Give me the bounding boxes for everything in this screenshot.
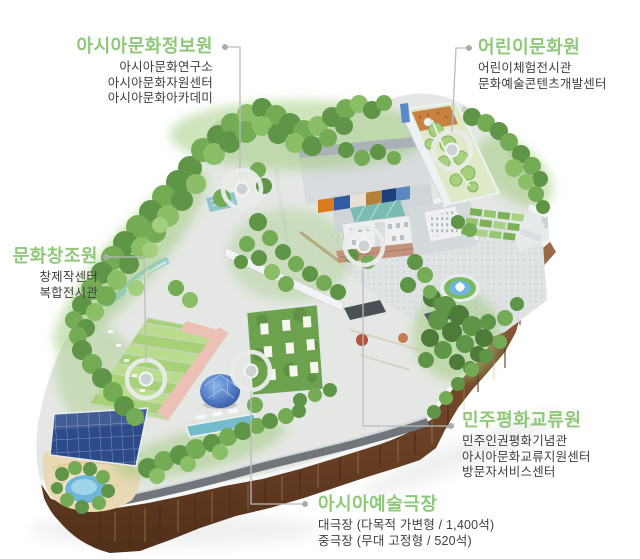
children-center-item: 문화예술콘텐츠개발센터 [478, 77, 607, 93]
info-center-item: 아시아문화아카데미 [77, 91, 213, 107]
culture-creation-item: 복합전시관 [13, 286, 98, 302]
skylight-garden-roof [246, 304, 324, 396]
label-arts-theater: 아시아예술극장 대극장 (다목적 가변형 / 1,400석) 중극장 (무대 고… [318, 494, 494, 549]
arts-theater-item: 중극장 (무대 고정형 / 520석) [318, 534, 494, 550]
culture-creation-item: 창제작센터 [13, 270, 98, 286]
info-center-title: 아시아문화정보원 [77, 36, 213, 56]
label-info-center: 아시아문화정보원 아시아문화연구소 아시아문화자원센터 아시아문화아카데미 [77, 36, 213, 107]
label-democracy-peace: 민주평화교류원 민주인권평화기념관 아시아문화교류지원센터 방문자서비스센터 [462, 410, 591, 481]
infographic-canvas: 아시아문화정보원 아시아문화연구소 아시아문화자원센터 아시아문화아카데미 어린… [0, 0, 640, 559]
arts-theater-title: 아시아예술극장 [318, 494, 494, 514]
democracy-peace-item: 민주인권평화기념관 [462, 434, 591, 450]
children-center-item: 어린이체험전시관 [478, 61, 607, 77]
label-culture-creation: 문화창조원 창제작센터 복합전시관 [13, 246, 98, 301]
culture-creation-title: 문화창조원 [13, 246, 98, 266]
children-center-title: 어린이문화원 [478, 37, 607, 57]
info-center-item: 아시아문화자원센터 [77, 76, 213, 92]
democracy-peace-item: 방문자서비스센터 [462, 465, 591, 481]
democracy-peace-item: 아시아문화교류지원센터 [462, 450, 591, 466]
label-children-center: 어린이문화원 어린이체험전시관 문화예술콘텐츠개발센터 [478, 37, 607, 92]
arts-theater-item: 대극장 (다목적 가변형 / 1,400석) [318, 518, 494, 534]
democracy-peace-title: 민주평화교류원 [462, 410, 591, 430]
info-center-item: 아시아문화연구소 [77, 60, 213, 76]
